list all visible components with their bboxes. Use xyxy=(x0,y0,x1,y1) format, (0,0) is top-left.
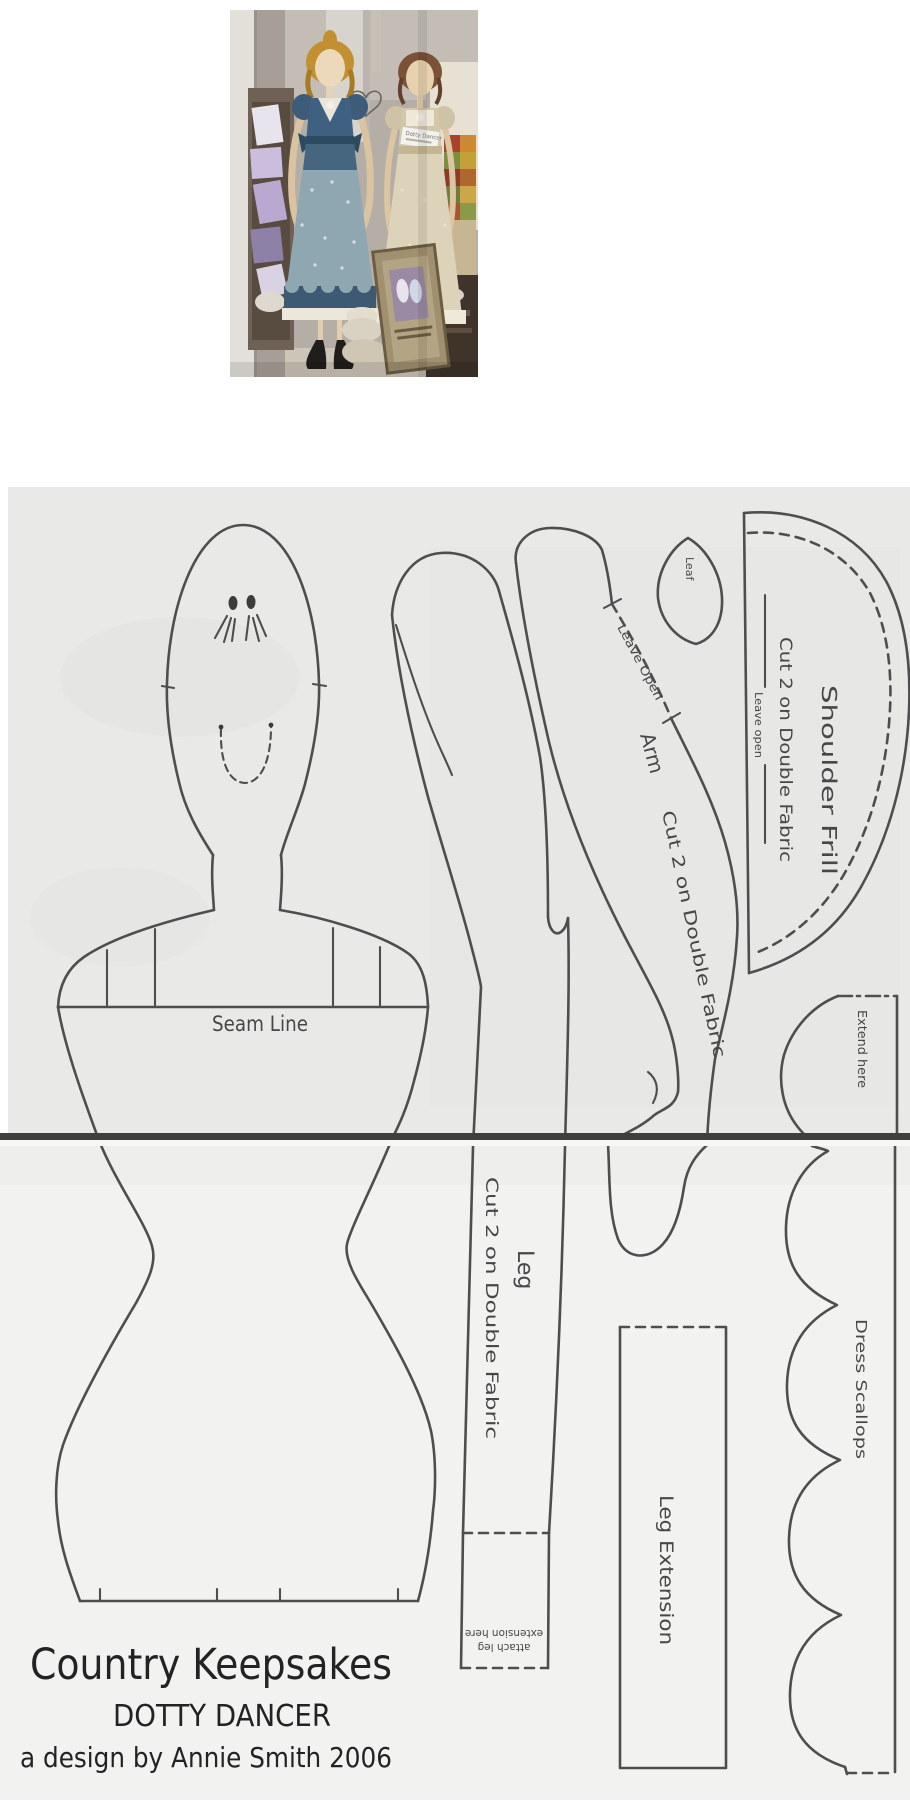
photo-pattern-packet xyxy=(373,245,449,374)
leg-cut-label: Cut 2 on Double Fabric xyxy=(482,1177,501,1439)
photo-shadow-bottom xyxy=(230,362,478,377)
extend-here-label: Extend here xyxy=(855,1010,869,1088)
attach-leg-line2: extension here xyxy=(465,1627,543,1639)
pattern-scan-page: Dotty Dancer xyxy=(0,0,910,1815)
designer-credit: a design by Annie Smith 2006 xyxy=(20,1741,392,1774)
page-break-band xyxy=(0,1133,910,1146)
dress-scallops-label: Dress Scallops xyxy=(852,1319,870,1459)
mouth-end-dot xyxy=(219,725,224,730)
shop-display-photo: Dotty Dancer xyxy=(230,10,478,377)
attach-leg-line1: attach leg xyxy=(478,1641,531,1653)
leg-extension-label: Leg Extension xyxy=(655,1495,677,1645)
photo-left-shelf xyxy=(230,10,294,377)
mouth-end-dot xyxy=(269,723,274,728)
shop-photo-graphic: Dotty Dancer xyxy=(230,10,478,377)
frill-leave-open-label: Leave open xyxy=(752,692,765,758)
leg-label: Leg xyxy=(512,1250,537,1289)
leaf-label: Leaf xyxy=(683,557,696,581)
pattern-title: DOTTY DANCER xyxy=(113,1699,331,1734)
frill-cut-label: Cut 2 on Double Fabric xyxy=(775,637,795,862)
brand-title: Country Keepsakes xyxy=(30,1640,392,1690)
photo-shadow-right xyxy=(418,10,427,377)
frill-label: Shoulder Frill xyxy=(817,685,841,875)
pattern-graphic: Seam Line Leg Cut 2 on Double Fabric xyxy=(0,487,910,1815)
seam-line-label: Seam Line xyxy=(212,1012,308,1036)
sewing-pattern-sheet: Seam Line Leg Cut 2 on Double Fabric xyxy=(0,487,910,1815)
